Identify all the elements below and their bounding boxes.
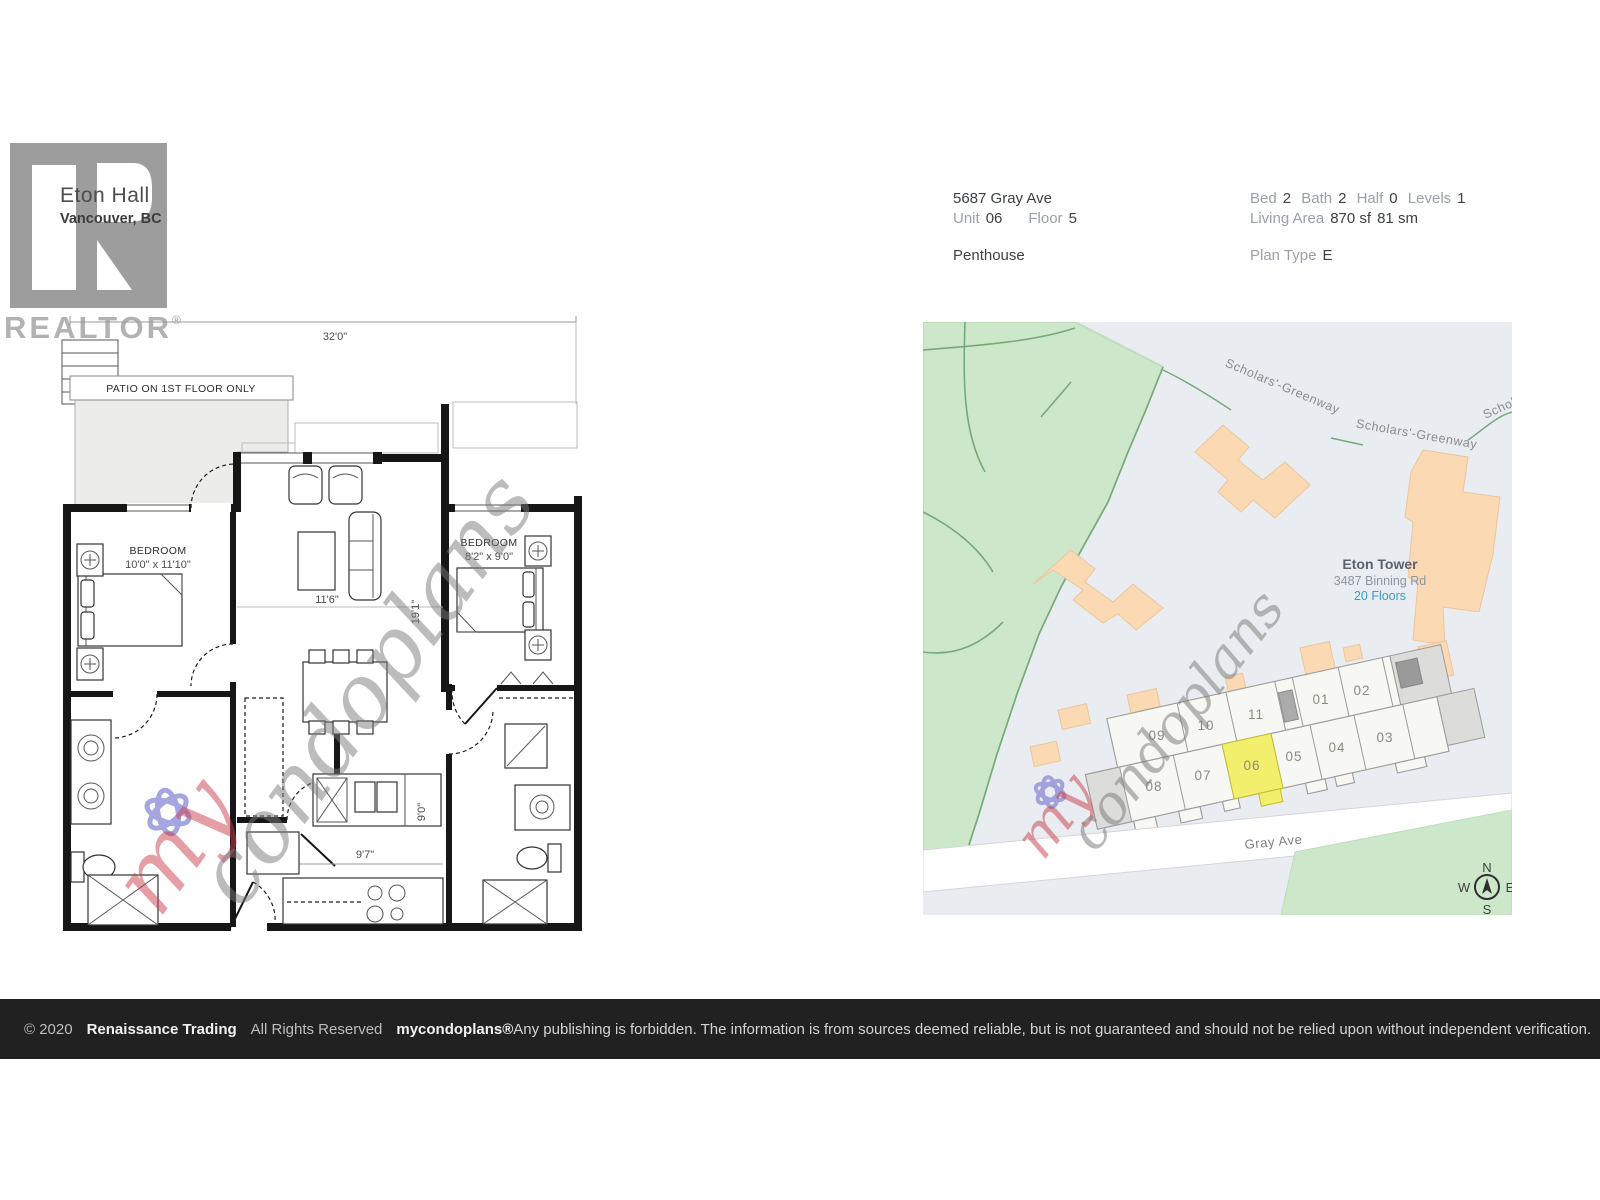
footer-copyright: © 2020 — [24, 1021, 73, 1038]
footer-brand: mycondoplans® — [396, 1021, 513, 1038]
compass-w: W — [1458, 880, 1471, 895]
footer-bar: © 2020 Renaissance Trading All Rights Re… — [0, 999, 1600, 1059]
building-city: Vancouver, BC — [60, 211, 162, 227]
bedroom1-dims: 10'0" x 11'10" — [125, 559, 191, 571]
unit-01[interactable]: 01 — [1312, 692, 1329, 707]
stats-line-1: Bed2 Bath2 Half0 Levels1 — [1250, 189, 1472, 209]
unit-stats: Bed2 Bath2 Half0 Levels1 Living Area870 … — [1250, 189, 1472, 266]
unit-07[interactable]: 07 — [1194, 768, 1211, 783]
bath-label: Bath — [1301, 190, 1332, 207]
plan-type-value: E — [1322, 247, 1332, 264]
patio-note: PATIO ON 1ST FLOOR ONLY — [106, 383, 256, 395]
unit-02[interactable]: 02 — [1353, 683, 1370, 698]
floor-plan: 32'0" PATIO ON 1ST FLOOR ONLY — [55, 312, 590, 937]
neighbour-outline — [242, 402, 577, 453]
tower-address: 3487 Binning Rd — [1334, 574, 1426, 588]
half-value: 0 — [1389, 190, 1397, 207]
tower-name: Eton Tower — [1342, 556, 1418, 572]
unit-06[interactable]: 06 — [1243, 758, 1260, 773]
bed-label: Bed — [1250, 190, 1277, 207]
footer-disclaimer: Any publishing is forbidden. The informa… — [513, 1021, 1591, 1038]
plan-type-line: Plan TypeE — [1250, 246, 1472, 266]
tower-floors: 20 Floors — [1354, 589, 1406, 603]
unit-value: 06 — [986, 210, 1003, 227]
address: 5687 Gray Ave — [953, 190, 1052, 207]
levels-label: Levels — [1408, 190, 1451, 207]
address-line: 5687 Gray Ave — [953, 189, 1083, 209]
bedroom1: BEDROOM 10'0" x 11'10" — [77, 544, 191, 680]
unit-label: Unit — [953, 210, 980, 227]
bedroom1-window — [127, 503, 189, 513]
stats-line-2: Living Area870 sf81 sm — [1250, 209, 1472, 229]
unit-04[interactable]: 04 — [1328, 740, 1345, 755]
living-window — [233, 452, 382, 464]
unit-05[interactable]: 05 — [1285, 749, 1302, 764]
bathroom2 — [483, 724, 570, 924]
dim-kitchen-height: 9'0" — [416, 803, 428, 821]
bedroom1-label: BEDROOM — [129, 545, 186, 557]
footer-company: Renaissance Trading — [87, 1021, 237, 1038]
levels-value: 1 — [1457, 190, 1465, 207]
unit-03[interactable]: 03 — [1376, 730, 1393, 745]
unit-details: 5687 Gray Ave Unit06Floor5 Penthouse — [953, 189, 1083, 266]
bed-value: 2 — [1283, 190, 1291, 207]
type-line: Penthouse — [953, 246, 1083, 266]
unit-floor-line: Unit06Floor5 — [953, 209, 1083, 229]
compass-s: S — [1483, 902, 1492, 915]
floor-label: Floor — [1028, 210, 1062, 227]
living-area-label: Living Area — [1250, 210, 1324, 227]
footer-rights: All Rights Reserved — [251, 1021, 383, 1038]
dim-living-width: 11'6" — [315, 594, 339, 606]
compass-e: E — [1506, 880, 1512, 895]
floor-value: 5 — [1069, 210, 1077, 227]
bath-value: 2 — [1338, 190, 1346, 207]
plan-type-label: Plan Type — [1250, 247, 1316, 264]
living-area-sf: 870 sf — [1330, 210, 1371, 227]
living-area-sm: 81 sm — [1377, 210, 1418, 227]
dim-kitchen-width: 9'7" — [356, 849, 374, 861]
unit-11[interactable]: 11 — [1248, 707, 1264, 722]
building-name: Eton Hall — [60, 184, 150, 208]
patio: PATIO ON 1ST FLOOR ONLY — [70, 376, 293, 505]
footer-left: © 2020 Renaissance Trading All Rights Re… — [24, 1021, 513, 1038]
dim-overall-width: 32'0" — [323, 331, 347, 343]
unit-type: Penthouse — [953, 247, 1025, 264]
compass-n: N — [1482, 860, 1491, 875]
half-label: Half — [1357, 190, 1384, 207]
site-map[interactable]: Scholars'-Greenway Scholars'-Greenway Sc… — [923, 322, 1512, 915]
